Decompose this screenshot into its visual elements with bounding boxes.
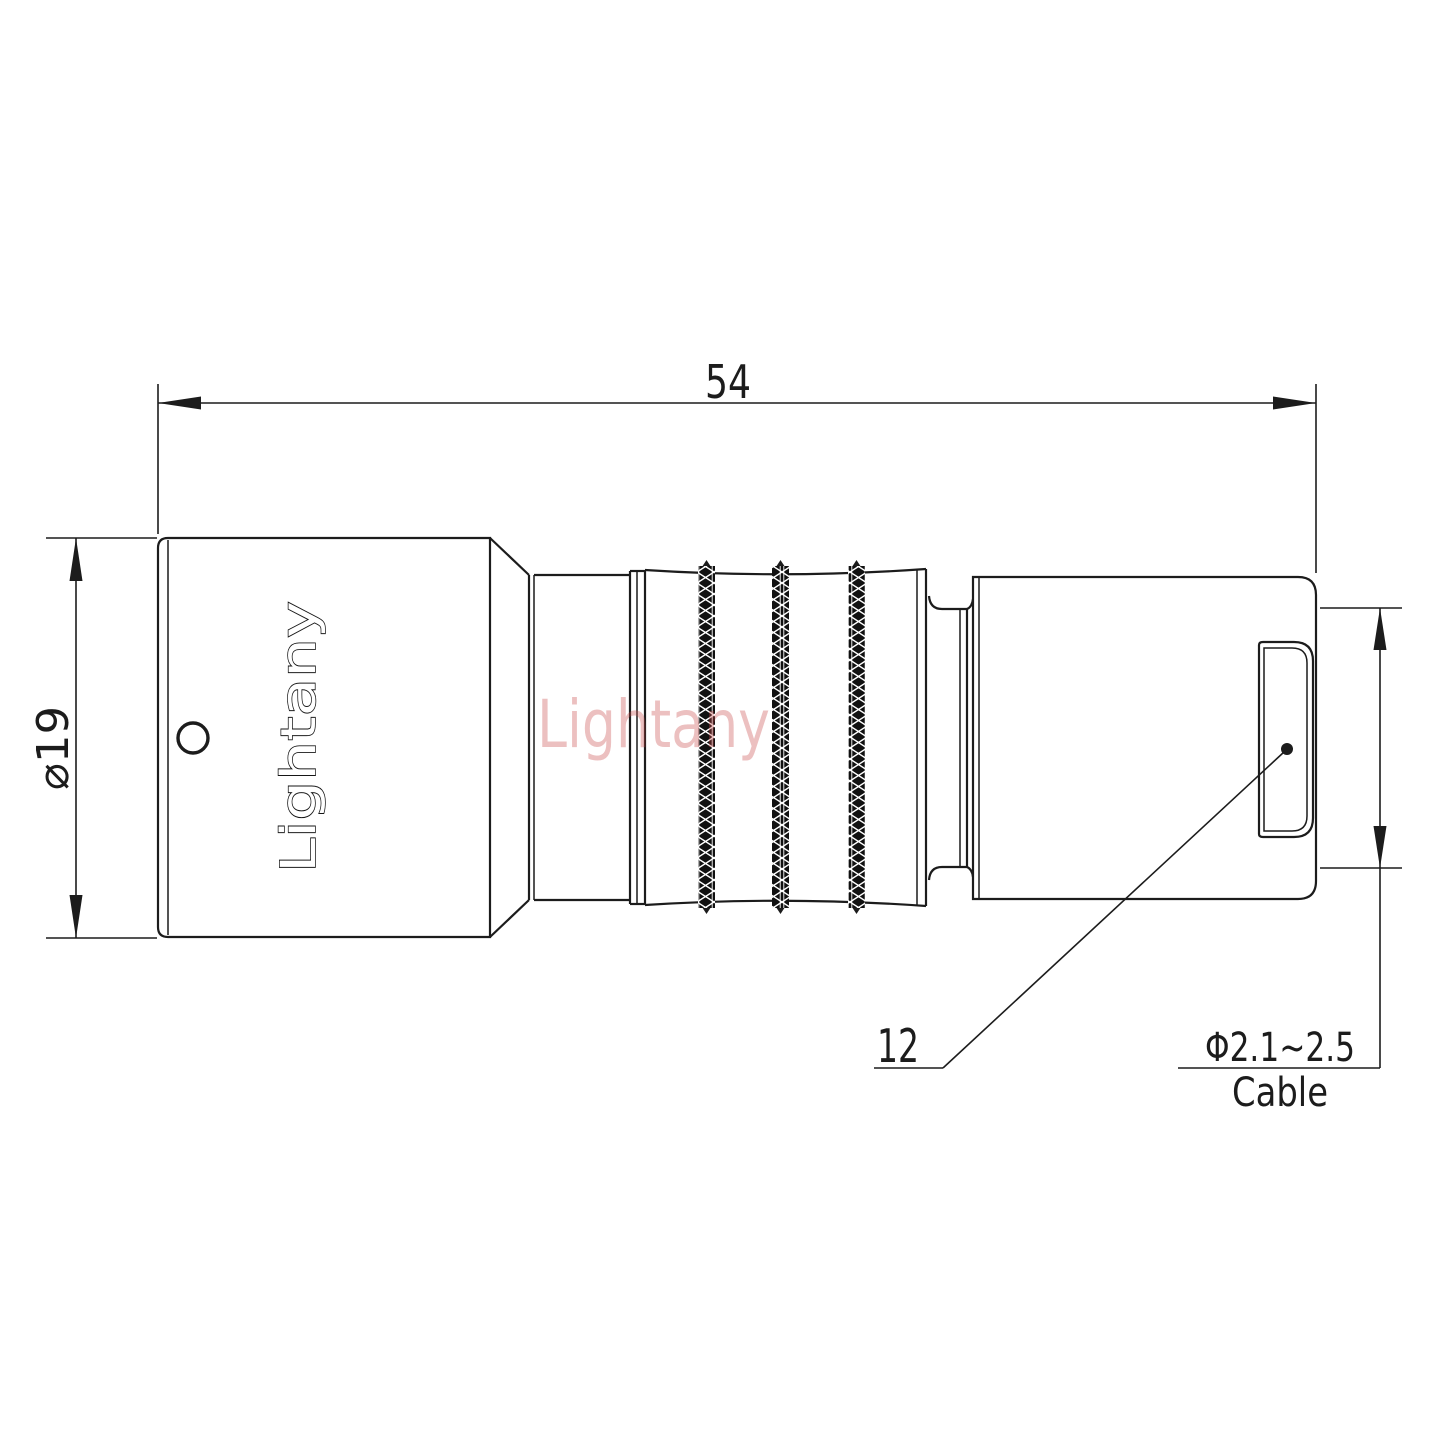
watermark-text: Lightany	[537, 686, 770, 763]
knurl-band-3-texture	[848, 566, 865, 908]
brand-engraving-text: Lightany	[271, 601, 327, 873]
dim-overall-length-label: 54	[705, 355, 751, 409]
arrow-bottom	[70, 895, 83, 938]
arrow-top	[70, 538, 83, 581]
taper-bottom-edge	[490, 900, 529, 937]
arrow-bottom	[1374, 826, 1387, 868]
cable-label: Cable	[1232, 1070, 1328, 1116]
arrow-right	[1273, 397, 1316, 410]
dimension-body-diameter: ⌀19	[28, 538, 157, 938]
neck-top-edge	[929, 596, 967, 609]
knurl-band-3	[848, 560, 865, 914]
leader-dot	[1281, 743, 1293, 755]
connector-drawing-svg: Lightany	[0, 0, 1440, 1440]
arrow-left	[158, 397, 201, 410]
dim-body-diameter-label: ⌀19	[28, 706, 79, 790]
cable-bushing-outer	[1259, 642, 1313, 837]
cable-diameter-label: Φ2.1~2.5	[1205, 1025, 1355, 1071]
technical-drawing-page: Lightany	[0, 0, 1440, 1440]
neck-bottom-edge	[929, 867, 967, 880]
knurl-band-2	[772, 560, 789, 914]
taper-top-edge	[490, 538, 529, 575]
knurl-band-2-texture	[772, 566, 789, 908]
dim-rear-label: 12	[877, 1019, 919, 1073]
arrow-top	[1374, 608, 1387, 650]
